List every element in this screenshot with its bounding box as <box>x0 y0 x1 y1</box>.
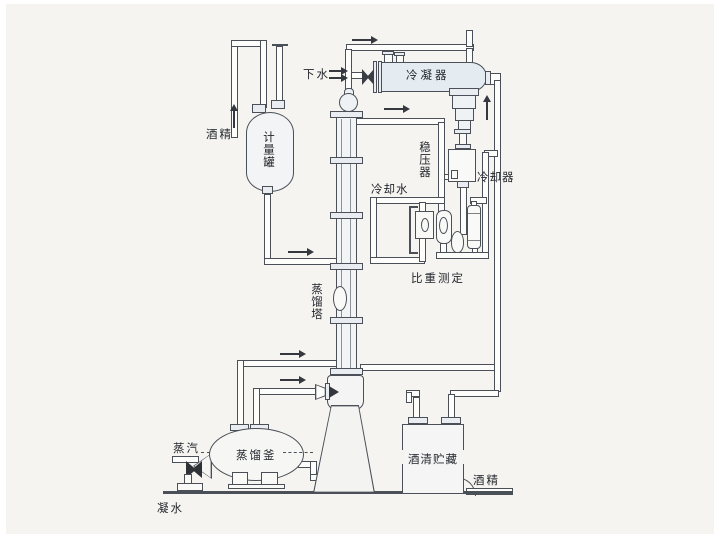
pressure-stabilizer-label: 稳压器 <box>418 141 431 179</box>
hydrometer-pot-window <box>421 218 429 232</box>
cooler-drain-nub <box>451 170 458 179</box>
alcohol-out-label: 酒精 <box>473 472 500 488</box>
flow-capsule-window <box>439 217 448 234</box>
pipe <box>419 238 426 262</box>
storage-tank-flange <box>408 417 428 424</box>
pipe <box>237 360 338 367</box>
pipe <box>482 152 489 258</box>
flow-arrow <box>352 39 372 41</box>
pipe <box>172 456 199 463</box>
column-flange <box>330 111 363 118</box>
storage-tank-flange <box>441 417 461 424</box>
distillation-kettle-label: 蒸馏釜 <box>236 447 277 463</box>
pipe <box>436 252 489 259</box>
flow-arrow-up <box>486 101 488 120</box>
alcohol-storage-label: 酒清贮藏 <box>408 451 458 467</box>
drain-water-label: 下水 <box>303 66 330 82</box>
steam-label: 蒸汽 <box>173 440 200 456</box>
pipe <box>460 187 467 235</box>
column-top-ball <box>339 93 358 112</box>
pipe <box>264 258 339 265</box>
pipe <box>346 44 474 51</box>
column-flange <box>330 212 363 219</box>
pipe <box>406 392 412 403</box>
pipe <box>356 118 445 125</box>
stack-segment <box>452 95 476 109</box>
condenser-outlet-nub <box>485 71 491 85</box>
measuring-tank-label: 计量罐 <box>262 131 275 169</box>
pipe <box>237 360 244 428</box>
test-cylinder-band <box>468 213 480 214</box>
flow-arrow-up <box>233 110 235 128</box>
pipe <box>466 30 473 47</box>
valve-pedestal-base <box>177 483 203 491</box>
panel-bracket <box>409 252 418 254</box>
condenser-label: 冷凝器 <box>406 67 450 83</box>
cooler-bottom-nub <box>457 181 469 188</box>
process-flow-diagram: 下水 冷凝器 稳压器 冷却水 冷却器 比重测定 蒸馏塔 计量罐 酒精 蒸汽 蒸馏… <box>0 0 720 540</box>
pipe <box>253 388 321 395</box>
tank-port <box>271 100 285 109</box>
flow-arrow <box>384 108 404 110</box>
pipe <box>253 388 260 428</box>
column-flange <box>330 263 363 270</box>
sight-glass <box>333 286 347 311</box>
pipe <box>360 364 501 371</box>
pipe <box>370 197 445 204</box>
panel-bracket <box>409 206 418 208</box>
test-cylinder <box>467 205 481 249</box>
tank-edge-break <box>461 450 466 464</box>
test-cylinder-band <box>468 240 480 241</box>
distillation-column-label: 蒸馏塔 <box>310 283 323 321</box>
pipe <box>264 194 271 264</box>
drain-arrow <box>329 70 342 72</box>
column-body <box>336 112 357 378</box>
vent-tip <box>272 44 288 46</box>
flow-arrow <box>280 379 300 381</box>
measuring-tank-nub <box>262 186 273 194</box>
cooling-water-label: 冷却水 <box>371 181 409 197</box>
kettle-centerline <box>283 452 313 453</box>
kettle-base-plate <box>228 484 285 489</box>
pipe <box>413 397 420 419</box>
column-flange <box>330 157 363 164</box>
pipe <box>370 197 377 264</box>
column-flange <box>330 368 363 375</box>
drain-arrow <box>329 77 342 79</box>
cooler-label: 冷却器 <box>477 169 515 185</box>
panel-bracket <box>409 206 411 254</box>
pipe <box>448 394 455 419</box>
pipe <box>450 390 499 397</box>
gravity-measurement-label: 比重测定 <box>411 270 465 286</box>
tank-edge-break <box>400 450 405 464</box>
pipe <box>370 257 425 264</box>
pipe <box>494 80 501 392</box>
flow-arrow <box>280 353 300 355</box>
kettle-centerline <box>201 452 210 453</box>
condensate-label: 凝水 <box>157 500 184 516</box>
float-bulb <box>451 231 464 253</box>
pipe <box>260 40 267 108</box>
flow-arrow <box>288 251 308 253</box>
alcohol-feed-label: 酒精 <box>206 126 233 142</box>
column-flange <box>330 317 363 324</box>
pipe <box>276 46 283 106</box>
